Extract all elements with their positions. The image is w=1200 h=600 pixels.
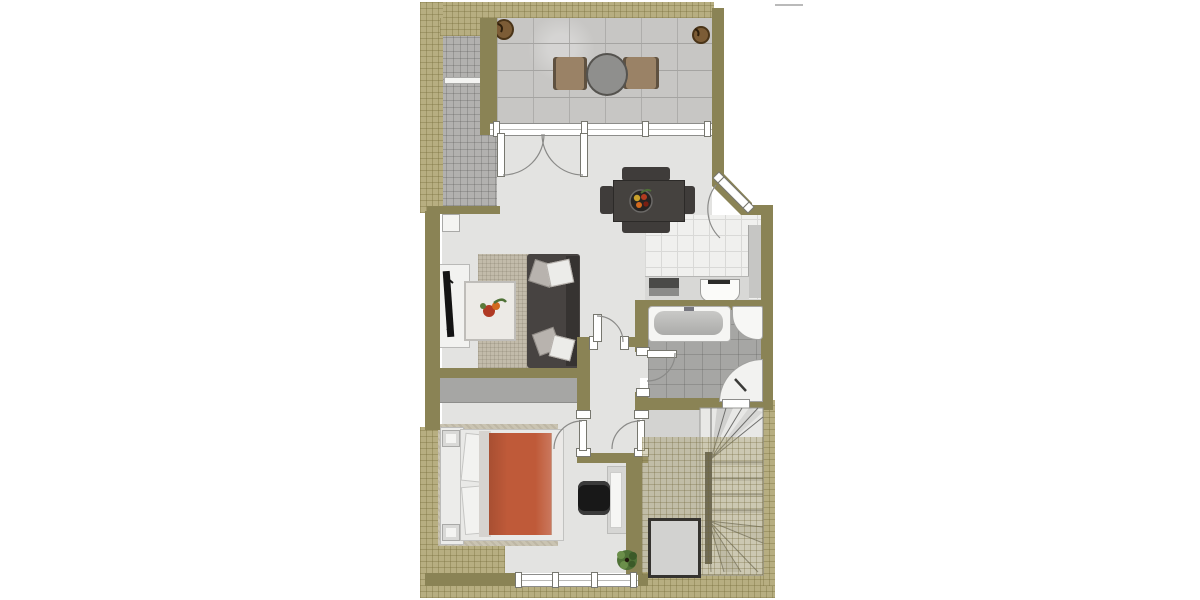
floor-plan (0, 0, 1200, 600)
bathroom-door-arc (647, 353, 675, 381)
hall-living-door-arc (597, 316, 623, 342)
french-door-arc-right (542, 134, 583, 175)
potted-plant-icon (617, 550, 637, 570)
stair-door-arc (612, 421, 640, 449)
french-door-arc-left (503, 134, 544, 175)
plant-swirl-icon (498, 24, 502, 32)
tv-stand-icon (447, 325, 453, 330)
plan-overlay (0, 0, 1200, 600)
bedroom-door-arc (554, 421, 582, 449)
fruit-bowl-icon (630, 190, 652, 212)
shower-handle-icon (735, 379, 746, 391)
coffee-table-decor-icon (480, 300, 506, 317)
watermark-text (775, 4, 803, 6)
floor-opening (648, 518, 701, 578)
tv-stand-icon (447, 278, 453, 283)
entry-door-arc (708, 185, 720, 238)
plant-swirl-icon (695, 29, 699, 36)
